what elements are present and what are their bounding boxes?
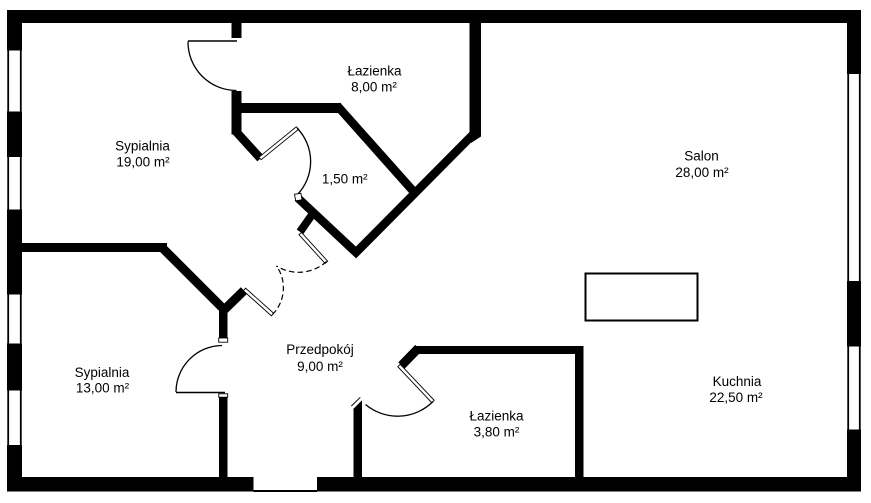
svg-text:8,00 m²: 8,00 m²	[351, 80, 397, 95]
svg-text:13,00 m²: 13,00 m²	[76, 381, 130, 396]
svg-text:Kuchnia: Kuchnia	[713, 374, 762, 389]
svg-text:Sypialnia: Sypialnia	[115, 139, 170, 154]
svg-text:19,00 m²: 19,00 m²	[116, 155, 170, 170]
svg-text:Sypialnia: Sypialnia	[75, 365, 130, 380]
svg-text:1,50 m²: 1,50 m²	[322, 172, 368, 187]
svg-text:Salon: Salon	[684, 149, 719, 164]
svg-text:3,80 m²: 3,80 m²	[474, 424, 520, 439]
svg-text:Łazienka: Łazienka	[347, 64, 402, 79]
svg-text:Przedpokój: Przedpokój	[286, 342, 354, 357]
svg-text:9,00 m²: 9,00 m²	[297, 359, 343, 374]
svg-text:Łazienka: Łazienka	[469, 408, 524, 423]
svg-text:22,50 m²: 22,50 m²	[709, 390, 763, 405]
svg-text:28,00 m²: 28,00 m²	[675, 165, 729, 180]
